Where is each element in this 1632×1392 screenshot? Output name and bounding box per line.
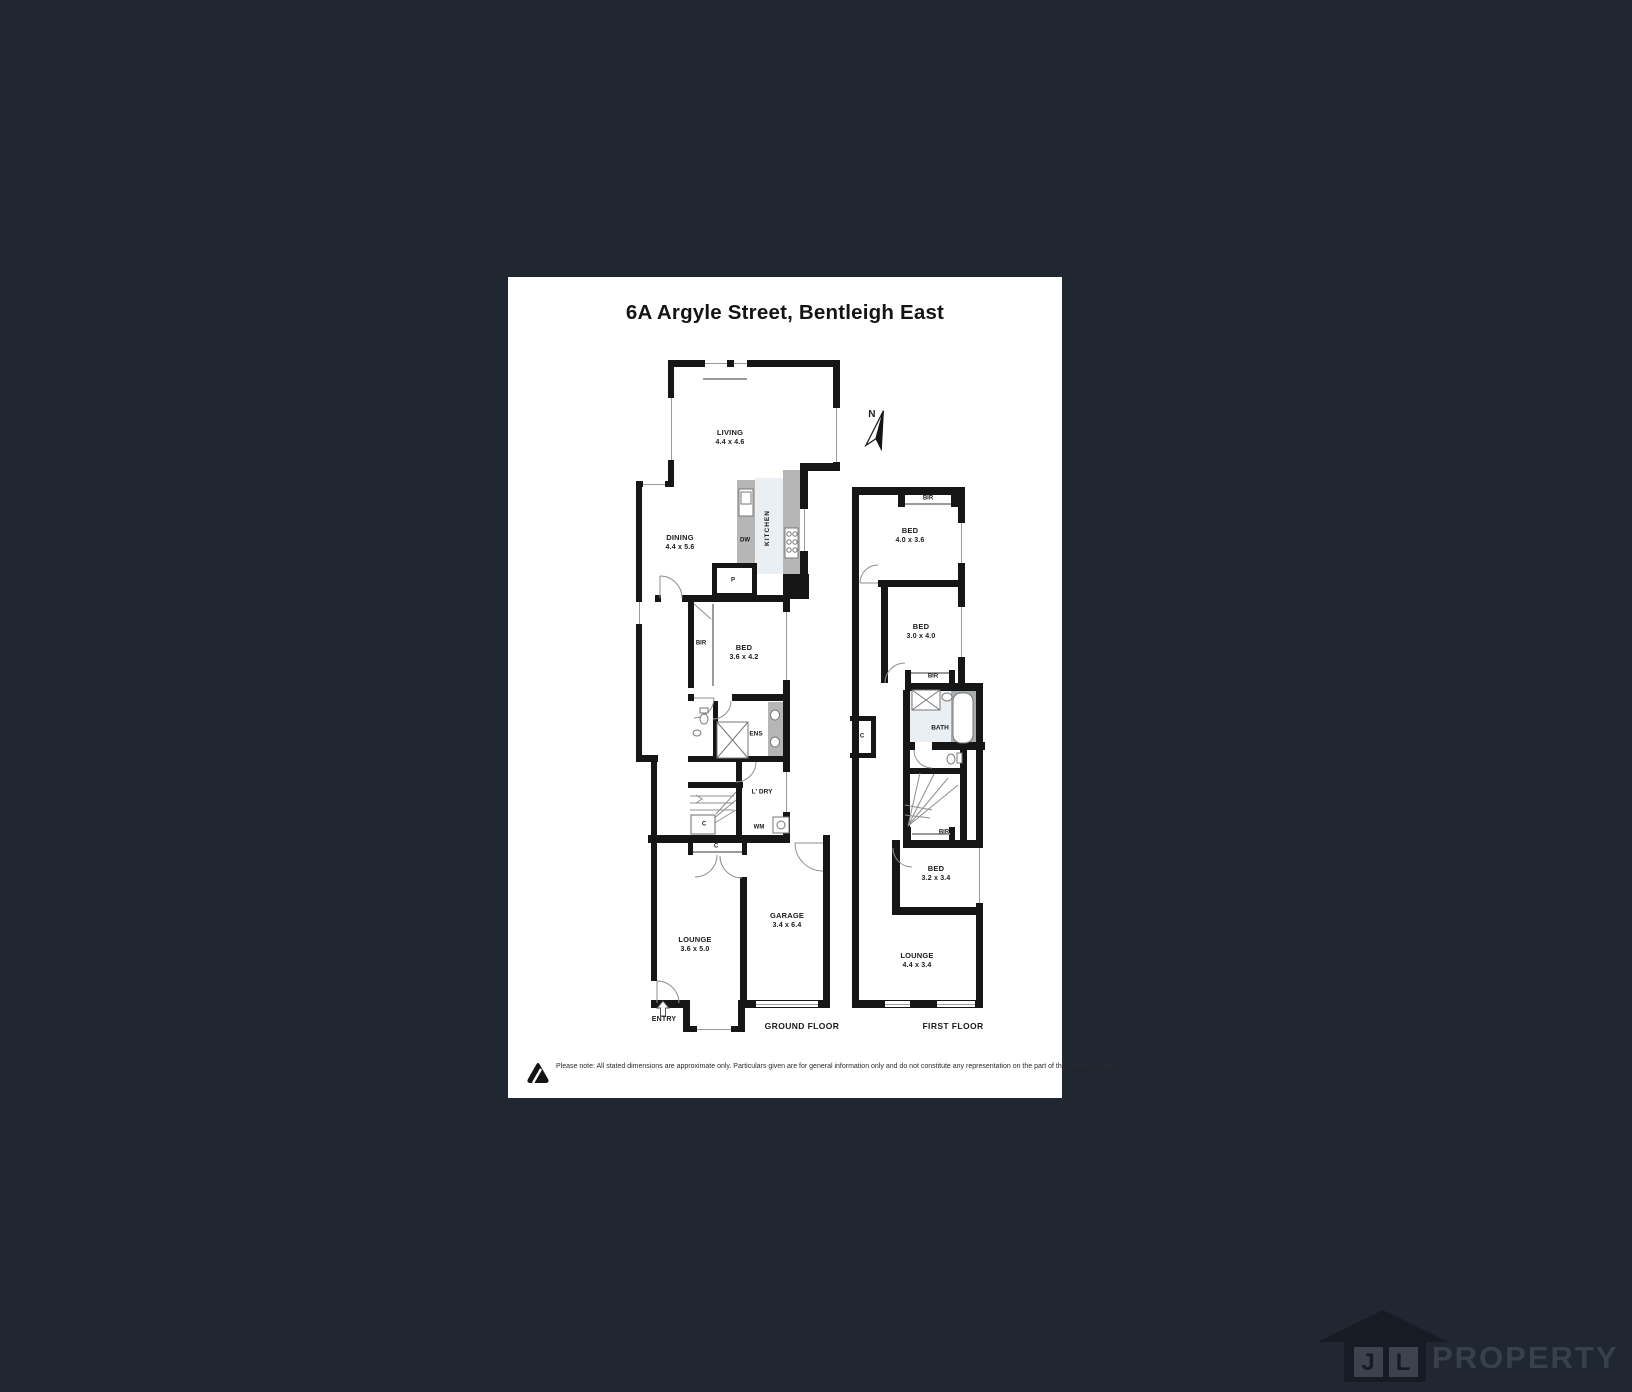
room-label-kitchen: KITCHEN [763,510,773,546]
basin [693,730,701,736]
room-dims: 3.4 x 6.4 [770,921,804,931]
cooktop-burner [787,532,791,536]
entry-door-arc [657,981,679,1003]
label-pantry: P [731,578,735,585]
room-dims: 4.4 x 5.6 [665,543,694,553]
room-label-living: LIVING 4.4 x 4.6 [715,428,744,448]
door-arc [860,565,878,583]
watermark-initial-j: J [1361,1349,1374,1376]
room-label-bed: BED 3.6 x 4.2 [729,643,758,663]
toilet-tank [957,753,962,763]
door-arc [713,701,731,719]
room-dims: 3.2 x 3.4 [921,874,950,884]
plan-linework: J L PROPERTY [0,0,1632,1392]
room-dims: 4.4 x 3.4 [900,961,933,971]
room-dims: 3.0 x 4.0 [906,632,935,642]
door-arc [695,855,717,877]
room-name: LOUNGE [900,951,933,961]
room-name: DINING [665,533,694,543]
caption-ground-floor: GROUND FLOOR [765,1021,840,1031]
door-arc [893,848,912,867]
toilet-tank [700,708,708,713]
room-label-bed1: BED 4.0 x 3.6 [895,526,924,546]
door-arc [914,750,932,768]
disclaimer-text: Please note: All stated dimensions are a… [556,1063,1062,1070]
house-roof-icon [1318,1310,1448,1342]
cooktop-burner [793,540,797,544]
label-bir: BIR [928,674,938,681]
toilet-bowl [700,714,708,724]
room-name: BED [895,526,924,536]
room-dims: 4.4 x 4.6 [715,438,744,448]
door-arc [660,576,682,598]
cooktop-burner [787,540,791,544]
label-entry: ENTRY [652,1015,676,1025]
room-name: BED [906,622,935,632]
label-bir: BIR [939,830,949,837]
room-label-dining: DINING 4.4 x 5.6 [665,533,694,553]
door-arc [736,762,756,782]
label-bir: BIR [696,641,706,648]
door-arc [795,843,823,871]
room-dims: 3.6 x 4.2 [729,653,758,663]
jl-property-watermark: J L PROPERTY [1318,1310,1619,1382]
room-label-ensuite: ENS [749,731,762,738]
compass-north-label: N [868,410,875,420]
room-label-lounge: LOUNGE 3.6 x 5.0 [678,935,711,955]
watermark-brand: PROPERTY [1432,1340,1619,1375]
basin [942,693,952,701]
room-label-laundry: L' DRY [752,789,773,796]
room-name: LOUNGE [678,935,711,945]
label-closet: C [714,844,718,851]
label-closet: C [702,822,706,829]
vanity-basin [771,737,780,747]
door-arc [720,856,742,878]
cooktop-burner [793,548,797,552]
stairs [690,773,958,834]
room-name: BED [729,643,758,653]
door-arc [885,663,905,683]
entry-arrow-icon [657,1001,669,1016]
room-name: LIVING [715,428,744,438]
stair-winders [908,773,958,826]
room-dims: 3.6 x 5.0 [678,945,711,955]
bathtub [953,693,973,743]
washing-machine-door [777,821,785,829]
cooktop-burner [787,548,791,552]
toilet-bowl [947,754,955,764]
agency-logo-icon [527,1063,548,1083]
label-closet: C [860,734,864,741]
room-name: BED [921,864,950,874]
label-washing-machine: WM [754,825,765,832]
label-dishwasher: DW [740,538,750,545]
stair-treads [905,805,932,818]
room-label-bed2: BED 3.0 x 4.0 [906,622,935,642]
caption-first-floor: FIRST FLOOR [922,1021,983,1031]
room-dims: 4.0 x 3.6 [895,536,924,546]
vanity-basin [771,710,780,720]
room-name: GARAGE [770,911,804,921]
room-label-bed3: BED 3.2 x 3.4 [921,864,950,884]
label-bir: BIR [923,496,933,503]
room-label-bath: BATH [931,725,949,732]
kitchen-sink-bowl [741,492,751,504]
floorplan-page: 6A Argyle Street, Bentleigh East [0,0,1632,1392]
watermark-initial-l: L [1396,1349,1411,1376]
room-label-garage: GARAGE 3.4 x 6.4 [770,911,804,931]
cooktop-burner [793,532,797,536]
closet-door-line [694,604,711,619]
room-label-lounge-first: LOUNGE 4.4 x 3.4 [900,951,933,971]
